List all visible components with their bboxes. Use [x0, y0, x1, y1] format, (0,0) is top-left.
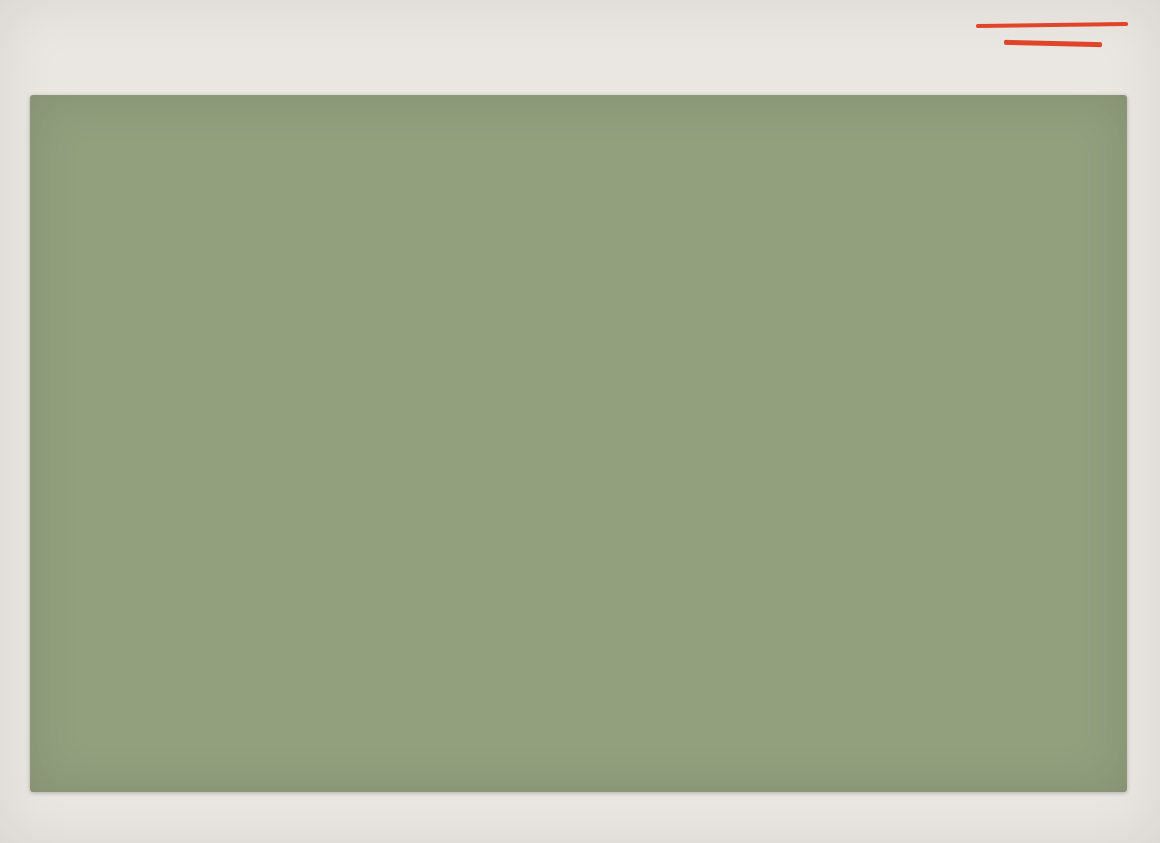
stat-center-area-value: [230, 464, 248, 508]
stat-recreation-value: [230, 529, 248, 573]
masterplan-drawing: [30, 95, 1127, 792]
stat-recreation: [230, 529, 248, 573]
brand-underline: [976, 22, 1128, 28]
brand-logo: [976, 18, 1128, 46]
brand-underline-2: [1004, 40, 1102, 47]
stats-panel: [230, 333, 248, 594]
slide: [0, 0, 1160, 843]
stat-parcels-value: [230, 398, 248, 442]
stat-total-area: [230, 333, 248, 377]
stat-center-area: [230, 464, 248, 508]
stat-parcels: [230, 398, 248, 442]
stat-total-area-value: [230, 333, 248, 377]
masterplan-map: [30, 95, 1127, 792]
